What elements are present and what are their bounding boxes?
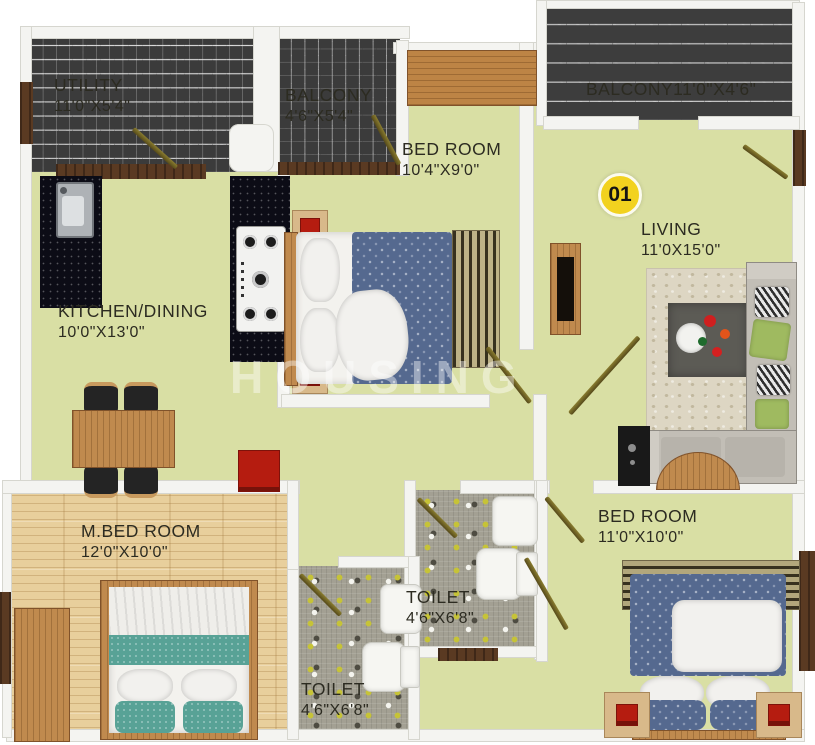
door-leaf-utility: [229, 124, 274, 172]
tv-unit: [618, 426, 650, 486]
balcony-top-label: BALCONY 4'6"X5'4": [285, 84, 372, 128]
bed-throw-blanket: [672, 600, 782, 672]
teal-pillow: [183, 701, 243, 733]
room-dims: 4'6"X6'8": [301, 701, 369, 722]
kitchen-dining-label: KITCHEN/DINING 10'0"X13'0": [58, 300, 208, 344]
balcony-right-label: BALCONY11'0"X4'6": [586, 78, 756, 101]
dining-chair: [124, 464, 158, 498]
tv-screen: [557, 257, 574, 321]
wardrobe-bedroom-bottom: [799, 551, 815, 671]
wall: [533, 394, 547, 494]
kitchen-sink: [56, 182, 94, 238]
wardrobe-master-bedroom: [14, 608, 70, 742]
stove-center-burner: [252, 271, 269, 288]
gas-stove: [236, 226, 286, 332]
bed-master: [100, 580, 258, 740]
dining-chair: [84, 464, 118, 498]
zebra-cushion: [757, 365, 790, 395]
bed-sheet: [109, 587, 249, 635]
green-cushion: [749, 319, 792, 362]
flower-decor: [712, 347, 722, 357]
room-name: UTILITY: [54, 74, 130, 97]
stove-knobs: [241, 261, 244, 297]
room-name: BALCONY: [285, 84, 372, 107]
window-frame: [0, 592, 11, 684]
flower-decor: [704, 315, 716, 327]
room-dims: 10'4"X9'0": [402, 161, 501, 182]
wall: [287, 556, 299, 740]
bedroom-bottom-label: BED ROOM 11'0"X10'0": [598, 505, 697, 549]
room-name: BALCONY11'0"X4'6": [586, 78, 756, 101]
sofa-armrest: [747, 263, 796, 279]
wall: [543, 116, 639, 130]
knob: [628, 444, 636, 452]
decor-red: [616, 704, 638, 726]
wall: [536, 0, 547, 126]
sink-toilet-middle: [492, 496, 538, 546]
coffee-table: [668, 303, 748, 377]
leaf-decor: [698, 337, 707, 346]
window-frame: [793, 130, 806, 186]
zebra-cushion: [755, 287, 789, 317]
room-name: BED ROOM: [598, 505, 697, 528]
wc-tank: [400, 646, 420, 688]
room-name: TOILET: [301, 678, 369, 701]
decor-red: [768, 704, 790, 726]
bed-pillow: [117, 669, 173, 703]
sink-basin: [62, 196, 84, 226]
room-dims: 11'0"X5'4": [54, 97, 130, 118]
room-dims: 11'0X15'0": [641, 241, 721, 262]
wall: [338, 556, 418, 568]
toilet-middle-label: TOILET 4'6"X6'8": [406, 586, 474, 630]
flower-decor: [720, 329, 730, 339]
utility-label: UTILITY 11'0"X5'4": [54, 74, 130, 118]
teal-pillow: [115, 701, 175, 733]
room-name: TOILET: [406, 586, 474, 609]
window-frame: [20, 82, 33, 144]
toilet-bottom-label: TOILET 4'6"X6'8": [301, 678, 369, 722]
room-dims: 12'0"X10'0": [81, 543, 201, 564]
floor-runner: [452, 230, 500, 368]
dining-table: [72, 410, 175, 468]
balcony-right-floor: [543, 6, 795, 120]
wardrobe-bedroom-top: [407, 50, 537, 106]
unit-number-badge: 01: [598, 173, 642, 217]
room-name: KITCHEN/DINING: [58, 300, 208, 323]
room-name: M.BED ROOM: [81, 520, 201, 543]
room-name: BED ROOM: [402, 138, 501, 161]
teal-blanket: [109, 635, 249, 665]
living-label: LIVING 11'0X15'0": [641, 218, 721, 262]
room-dims: 11'0"X10'0": [598, 528, 697, 549]
floor-plan: HOUSING 01 UTILITY 11'0"X5'4" BALCONY 4'…: [0, 0, 815, 745]
master-bedroom-label: M.BED ROOM 12'0"X10'0": [81, 520, 201, 564]
bed-pillow: [181, 669, 237, 703]
wall: [698, 116, 800, 130]
faucet-icon: [60, 187, 67, 194]
wall: [536, 0, 800, 9]
watermark: HOUSING: [230, 350, 529, 404]
bed-pillow: [300, 238, 340, 302]
room-dims: 10'0"X13'0": [58, 323, 208, 344]
shoe-cabinet: [238, 450, 280, 492]
room-dims: 4'6"X5'4": [285, 107, 372, 128]
room-dims: 4'6"X6'8": [406, 609, 474, 630]
room-name: LIVING: [641, 218, 721, 241]
wall: [20, 26, 410, 39]
bedroom-top-label: BED ROOM 10'4"X9'0": [402, 138, 501, 182]
wall: [287, 480, 299, 570]
window-frame: [438, 648, 498, 661]
window-frame: [278, 162, 400, 175]
unit-number: 01: [608, 183, 631, 207]
tv-cabinet: [550, 243, 581, 335]
green-cushion: [755, 399, 789, 429]
nightstand: [604, 692, 650, 738]
knob: [630, 460, 635, 465]
nightstand: [756, 692, 802, 738]
